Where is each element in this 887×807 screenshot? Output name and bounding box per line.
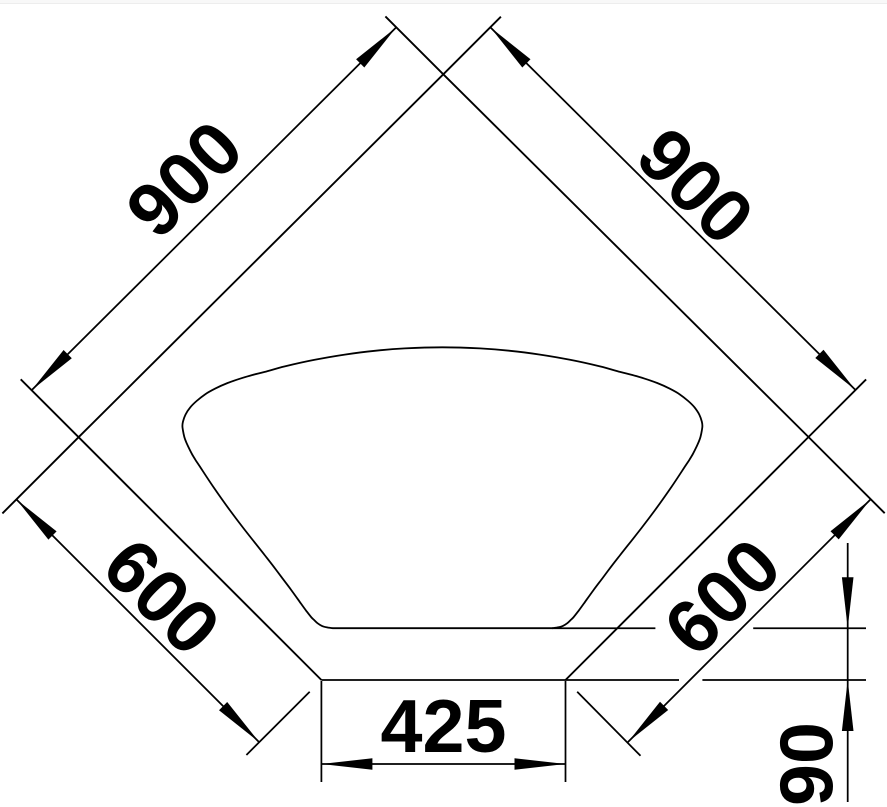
svg-text:425: 425 bbox=[381, 684, 507, 768]
svg-text:900: 900 bbox=[621, 112, 769, 260]
svg-text:600: 600 bbox=[648, 523, 796, 671]
svg-text:600: 600 bbox=[88, 523, 236, 671]
svg-text:900: 900 bbox=[110, 105, 258, 253]
svg-text:90: 90 bbox=[765, 722, 849, 806]
